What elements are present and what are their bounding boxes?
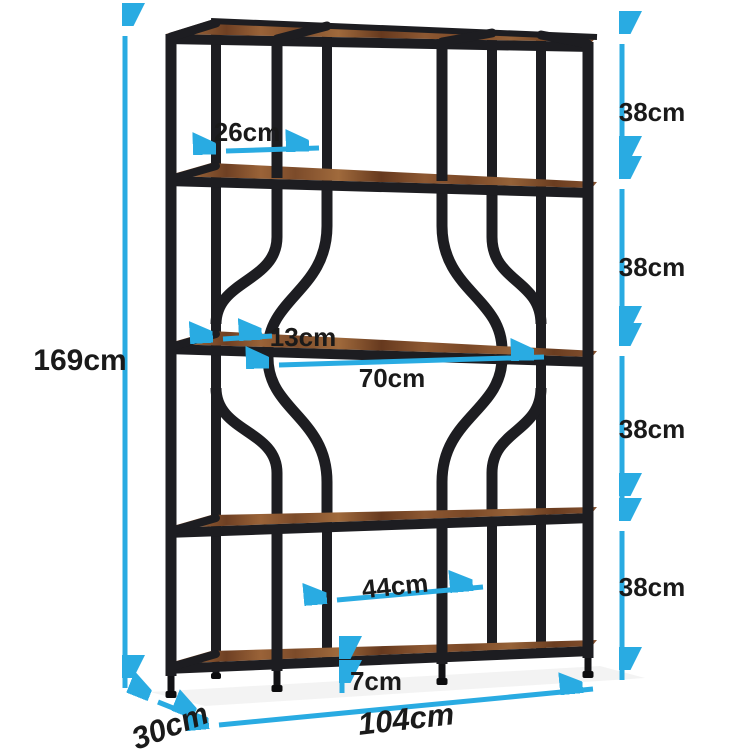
dim-label-tier-gap-1: 38cm: [619, 99, 686, 125]
dim-label-arc-inset: 13cm: [270, 324, 337, 350]
product-dimension-diagram: 169cm 26cm 38cm 38cm 38cm 38cm 13cm 70cm…: [0, 0, 750, 750]
dim-label-total-height: 169cm: [33, 346, 126, 376]
shelf-top: [166, 20, 597, 52]
shelf-4: [166, 507, 597, 538]
dim-arrow-side-bay: [226, 148, 319, 151]
dim-label-tier-gap-2: 38cm: [619, 254, 686, 280]
dim-label-tier-gap-3: 38cm: [619, 416, 686, 442]
dim-label-tier-gap-4: 38cm: [619, 574, 686, 600]
shelf-2: [166, 163, 597, 198]
dim-label-side-bay-width: 26cm: [214, 119, 281, 145]
dim-label-center-bay-width: 70cm: [359, 365, 426, 391]
dim-label-lower-center-span: 44cm: [361, 570, 430, 603]
dim-arrow-arc-inset: [223, 336, 272, 339]
dim-label-bottom-clearance: 7cm: [350, 668, 402, 694]
